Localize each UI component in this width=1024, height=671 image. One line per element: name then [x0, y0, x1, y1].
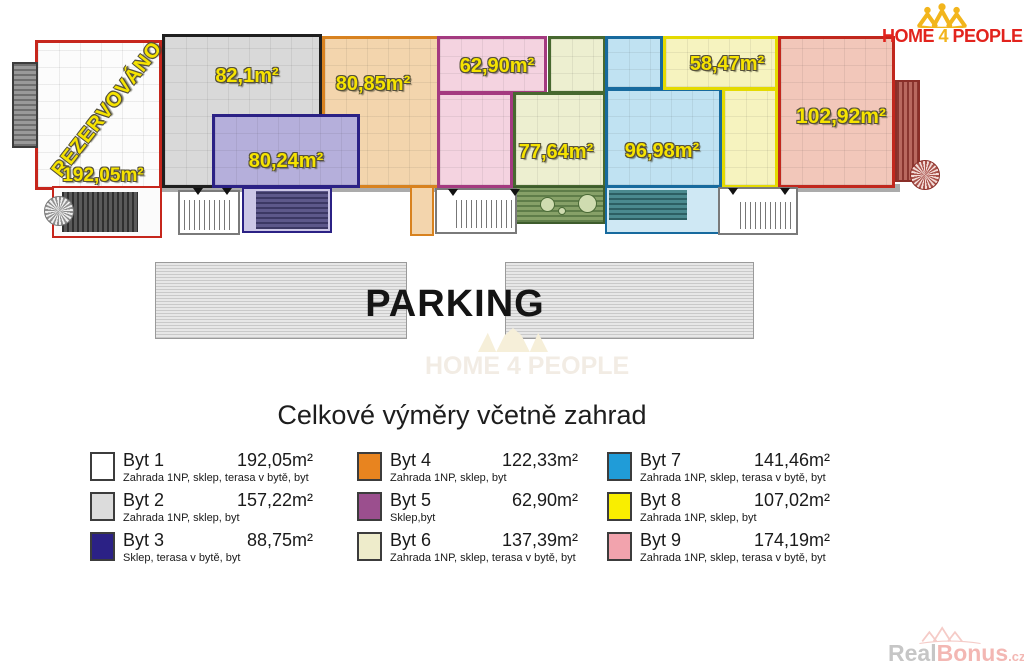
- spiral-stair-left: [44, 196, 74, 226]
- unit-byt5-lower: [437, 92, 513, 188]
- byt7-deck: [609, 190, 687, 220]
- door-marker: [510, 189, 520, 196]
- legend-item-byt4: Byt 4122,33m² Zahrada 1NP, sklep, byt: [357, 450, 578, 484]
- door-marker: [222, 188, 232, 195]
- legend-unit-name: Byt 8: [640, 490, 681, 511]
- legend-swatch: [357, 452, 382, 481]
- door-marker: [780, 188, 790, 195]
- legend-unit-desc: Zahrada 1NP, sklep, byt: [390, 472, 578, 484]
- stairs-left: [184, 200, 234, 230]
- byt5-area-label: 62,90m²: [434, 55, 560, 78]
- legend-unit-name: Byt 6: [390, 530, 431, 551]
- door-marker: [448, 189, 458, 196]
- home4people-crown-icon: [908, 2, 976, 28]
- byt6-bush: [558, 207, 566, 215]
- legend-item-byt5: Byt 562,90m² Sklep,byt: [357, 490, 578, 524]
- legend-unit-desc: Zahrada 1NP, sklep, terasa v bytě, byt: [123, 472, 313, 484]
- unit-byt7-upper: [605, 36, 663, 90]
- byt6-bush: [578, 194, 597, 213]
- legend-unit-area: 62,90m²: [512, 490, 578, 511]
- door-marker: [728, 188, 738, 195]
- stairs-right: [740, 202, 795, 229]
- byt2-area-label: 82,1m²: [187, 65, 307, 88]
- logo-word-4: 4: [939, 26, 949, 46]
- legend-unit-desc: Sklep,byt: [390, 512, 578, 524]
- byt6-bush: [540, 197, 555, 212]
- legend-item-byt1: Byt 1192,05m² Zahrada 1NP, sklep, terasa…: [90, 450, 313, 484]
- byt3-area-label: 80,24m²: [221, 150, 351, 173]
- legend-unit-area: 122,33m²: [502, 450, 578, 471]
- legend-title: Celkové výměry včetně zahrad: [260, 400, 664, 431]
- legend-unit-area: 88,75m²: [247, 530, 313, 551]
- legend-unit-desc: Zahrada 1NP, sklep, byt: [640, 512, 830, 524]
- unit-byt6-lower: [513, 92, 606, 188]
- legend-unit-name: Byt 4: [390, 450, 431, 471]
- legend-unit-area: 137,39m²: [502, 530, 578, 551]
- logo-word-people: PEOPLE: [953, 26, 1023, 46]
- byt1-area-label: 192,05m²: [44, 165, 162, 187]
- legend-unit-area: 192,05m²: [237, 450, 313, 471]
- legend-item-byt6: Byt 6137,39m² Zahrada 1NP, sklep, terasa…: [357, 530, 578, 564]
- realbonus-real: Real: [888, 640, 937, 666]
- legend-swatch: [357, 492, 382, 521]
- left-balcony: [12, 62, 38, 148]
- realbonus-tld: .cz: [1008, 649, 1024, 664]
- door-marker: [193, 188, 203, 195]
- realbonus-bonus: Bonus: [937, 640, 1009, 666]
- legend-unit-name: Byt 9: [640, 530, 681, 551]
- byt7-area-label: 96,98m²: [599, 140, 725, 163]
- legend-unit-desc: Zahrada 1NP, sklep, terasa v bytě, byt: [640, 472, 830, 484]
- legend-unit-area: 107,02m²: [754, 490, 830, 511]
- legend-unit-desc: Zahrada 1NP, sklep, terasa v bytě, byt: [390, 552, 578, 564]
- flyer-canvas: REZERVOVÁNO 192,05m² 82,1m² 80,24m² 80,8…: [0, 0, 1024, 671]
- legend-item-byt9: Byt 9174,19m² Zahrada 1NP, sklep, terasa…: [607, 530, 830, 564]
- legend-item-byt3: Byt 388,75m² Sklep, terasa v bytě, byt: [90, 530, 313, 564]
- byt8-area-label: 58,47m²: [664, 53, 790, 76]
- legend-swatch: [607, 452, 632, 481]
- home4people-logo: HOME 4 PEOPLE: [882, 26, 1016, 47]
- byt3-deck: [256, 191, 328, 229]
- realbonus-watermark: RealBonus.cz: [888, 640, 1024, 667]
- legend-unit-name: Byt 1: [123, 450, 164, 471]
- legend-unit-area: 157,22m²: [237, 490, 313, 511]
- legend-unit-name: Byt 7: [640, 450, 681, 471]
- legend-item-byt7: Byt 7141,46m² Zahrada 1NP, sklep, terasa…: [607, 450, 830, 484]
- byt4-area-label: 80,85m²: [310, 73, 436, 96]
- legend-unit-name: Byt 5: [390, 490, 431, 511]
- parking-label: PARKING: [355, 283, 555, 326]
- legend-unit-area: 141,46m²: [754, 450, 830, 471]
- legend-unit-name: Byt 2: [123, 490, 164, 511]
- legend-unit-area: 174,19m²: [754, 530, 830, 551]
- legend-swatch: [90, 532, 115, 561]
- unit-byt8-lower: [722, 88, 778, 188]
- spiral-stair-right: [910, 160, 940, 190]
- legend-unit-name: Byt 3: [123, 530, 164, 551]
- legend-swatch: [607, 492, 632, 521]
- legend-unit-desc: Sklep, terasa v bytě, byt: [123, 552, 313, 564]
- legend-swatch: [357, 532, 382, 561]
- center-watermark: HOME 4 PEOPLE: [425, 352, 615, 381]
- unit-byt4-annex: [410, 186, 434, 236]
- stairs-center: [456, 200, 512, 228]
- legend-item-byt8: Byt 8107,02m² Zahrada 1NP, sklep, byt: [607, 490, 830, 524]
- legend-swatch: [90, 452, 115, 481]
- legend-item-byt2: Byt 2157,22m² Zahrada 1NP, sklep, byt: [90, 490, 313, 524]
- logo-word-home: HOME: [882, 26, 934, 46]
- legend-swatch: [90, 492, 115, 521]
- legend-swatch: [607, 532, 632, 561]
- byt9-area-label: 102,92m²: [771, 105, 911, 129]
- legend-unit-desc: Zahrada 1NP, sklep, byt: [123, 512, 313, 524]
- legend-unit-desc: Zahrada 1NP, sklep, terasa v bytě, byt: [640, 552, 830, 564]
- unit-byt7-lower: [605, 88, 722, 188]
